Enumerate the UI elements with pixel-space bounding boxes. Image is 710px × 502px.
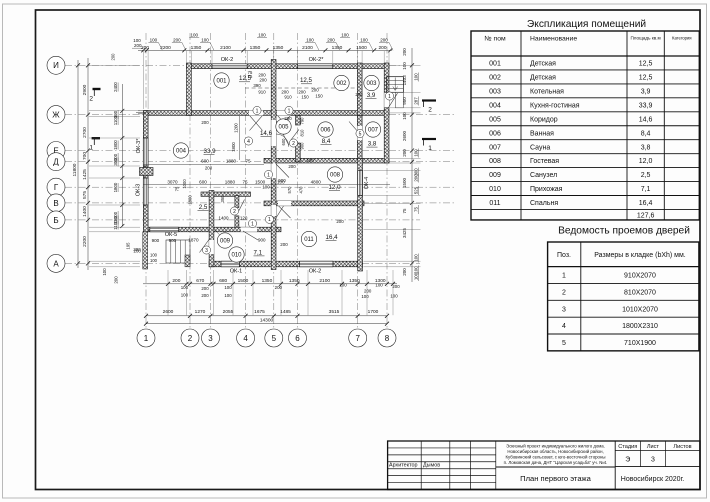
svg-text:3: 3: [208, 334, 213, 343]
svg-text:3: 3: [562, 306, 566, 313]
svg-text:1800: 1800: [113, 182, 118, 192]
svg-text:010: 010: [231, 253, 242, 259]
svg-text:200: 200: [111, 53, 116, 61]
svg-text:150: 150: [315, 93, 323, 98]
svg-text:100: 100: [414, 149, 419, 157]
svg-text:200: 200: [364, 288, 372, 293]
svg-text:14,6: 14,6: [260, 130, 273, 137]
svg-text:1403: 1403: [402, 75, 407, 86]
svg-text:75: 75: [414, 207, 419, 212]
svg-text:100: 100: [181, 285, 189, 290]
svg-text:7,1: 7,1: [254, 249, 263, 256]
svg-text:3515: 3515: [329, 309, 340, 315]
svg-text:100: 100: [402, 62, 407, 70]
svg-text:1: 1: [388, 94, 391, 100]
svg-text:Санузел: Санузел: [530, 172, 557, 179]
svg-text:14,6: 14,6: [639, 116, 653, 123]
svg-text:100: 100: [306, 158, 314, 163]
svg-text:011: 011: [304, 237, 314, 243]
svg-text:Категория: Категория: [672, 35, 692, 40]
svg-text:1500: 1500: [356, 45, 367, 51]
svg-text:Спальня: Спальня: [530, 200, 558, 207]
svg-text:100: 100: [360, 38, 368, 43]
svg-text:470: 470: [299, 186, 304, 194]
svg-text:1350: 1350: [191, 45, 202, 51]
svg-text:3: 3: [651, 457, 655, 464]
svg-text:1: 1: [89, 145, 93, 152]
svg-text:Ванная: Ванная: [530, 130, 554, 137]
svg-text:1350: 1350: [289, 278, 300, 284]
svg-text:2,5: 2,5: [199, 204, 208, 211]
svg-text:1880: 1880: [225, 180, 236, 185]
svg-text:1870: 1870: [188, 237, 199, 242]
svg-text:200: 200: [284, 116, 292, 121]
svg-text:100: 100: [150, 38, 158, 43]
svg-text:525: 525: [414, 186, 419, 194]
svg-text:1675: 1675: [254, 309, 265, 315]
svg-text:3,8: 3,8: [641, 144, 651, 151]
svg-text:700: 700: [82, 152, 88, 160]
svg-text:004: 004: [176, 149, 187, 155]
svg-text:4: 4: [562, 323, 566, 330]
svg-text:1485: 1485: [280, 309, 291, 315]
svg-text:1350: 1350: [273, 45, 284, 51]
svg-text:2055: 2055: [223, 309, 234, 315]
svg-text:100: 100: [150, 252, 158, 257]
svg-text:100: 100: [375, 283, 383, 288]
svg-text:И: И: [53, 61, 59, 70]
svg-text:Ж: Ж: [52, 110, 60, 119]
svg-text:2: 2: [233, 209, 236, 215]
svg-text:12,5: 12,5: [300, 77, 313, 84]
svg-text:14300: 14300: [260, 317, 274, 323]
svg-text:600: 600: [281, 138, 286, 146]
svg-text:12,0: 12,0: [639, 158, 653, 165]
svg-text:ОК-2: ОК-2: [309, 268, 322, 274]
svg-text:8,4: 8,4: [641, 130, 651, 137]
svg-text:100: 100: [341, 33, 349, 38]
svg-text:8: 8: [385, 334, 390, 343]
svg-text:1500: 1500: [238, 278, 249, 284]
svg-text:1350: 1350: [250, 45, 261, 51]
svg-text:1800: 1800: [188, 195, 193, 205]
svg-text:200: 200: [201, 293, 209, 298]
svg-text:200: 200: [380, 38, 388, 43]
svg-text:100: 100: [414, 73, 419, 81]
svg-text:Кухня-гостиная: Кухня-гостиная: [530, 102, 580, 109]
svg-text:75: 75: [242, 180, 248, 185]
svg-text:Г: Г: [54, 183, 59, 192]
svg-text:200: 200: [402, 149, 407, 157]
svg-text:Сауна: Сауна: [530, 144, 550, 151]
svg-text:А: А: [53, 259, 59, 268]
svg-text:33,9: 33,9: [639, 102, 653, 109]
svg-text:790: 790: [300, 117, 305, 125]
svg-text:1: 1: [428, 145, 432, 152]
svg-text:75: 75: [245, 159, 251, 164]
svg-text:4: 4: [247, 139, 250, 145]
svg-text:200: 200: [172, 278, 180, 284]
svg-text:1400: 1400: [82, 206, 88, 217]
svg-text:План первого этажа: План первого этажа: [520, 474, 591, 483]
svg-text:2900: 2900: [82, 84, 88, 95]
svg-text:680: 680: [219, 278, 227, 284]
svg-text:1400: 1400: [218, 216, 229, 221]
svg-text:1800: 1800: [231, 142, 236, 152]
svg-text:Дымов: Дымов: [423, 462, 440, 468]
svg-text:Архитектор: Архитектор: [389, 462, 417, 468]
svg-text:910Х2070: 910Х2070: [624, 273, 656, 280]
svg-text:200: 200: [280, 242, 288, 247]
svg-text:ОК-2*: ОК-2*: [309, 57, 325, 63]
svg-text:002: 002: [336, 81, 347, 87]
svg-text:001: 001: [489, 61, 501, 68]
svg-text:950: 950: [402, 97, 407, 105]
svg-text:200: 200: [336, 219, 344, 224]
svg-text:Эскизный проект индивидуальног: Эскизный проект индивидуального жилого д…: [506, 443, 605, 448]
svg-text:200: 200: [114, 276, 119, 284]
svg-text:100: 100: [224, 285, 232, 290]
svg-text:1500: 1500: [402, 177, 407, 188]
svg-text:1800Х2310: 1800Х2310: [622, 323, 658, 330]
svg-text:009: 009: [220, 239, 231, 245]
svg-text:100: 100: [150, 258, 158, 263]
svg-text:003: 003: [489, 88, 501, 95]
svg-text:200: 200: [201, 286, 209, 291]
svg-text:1800: 1800: [113, 140, 118, 150]
svg-text:005: 005: [278, 125, 289, 131]
svg-text:п. Ломовская дача, ДНТ "Царска: п. Ломовская дача, ДНТ "Царская усадьба"…: [504, 460, 608, 465]
svg-text:2100: 2100: [319, 278, 330, 284]
svg-text:2400: 2400: [113, 82, 118, 92]
svg-text:200: 200: [402, 268, 407, 276]
svg-text:Лист: Лист: [647, 444, 660, 450]
svg-text:1: 1: [267, 172, 270, 178]
svg-text:100: 100: [201, 38, 209, 43]
svg-text:008: 008: [489, 158, 501, 165]
svg-text:1: 1: [251, 221, 254, 227]
svg-text:3070: 3070: [167, 180, 178, 185]
svg-text:1350: 1350: [349, 278, 360, 284]
svg-text:Э: Э: [625, 457, 630, 464]
svg-text:009: 009: [489, 172, 501, 179]
svg-text:900: 900: [300, 142, 305, 150]
svg-text:Коридор: Коридор: [530, 116, 558, 123]
svg-text:200: 200: [134, 43, 142, 48]
svg-text:3,9: 3,9: [367, 92, 376, 99]
svg-text:300: 300: [113, 158, 118, 166]
svg-text:100: 100: [102, 268, 107, 276]
svg-text:200: 200: [414, 174, 419, 182]
svg-text:575: 575: [82, 191, 88, 199]
svg-text:1000: 1000: [182, 179, 187, 189]
svg-text:127,6: 127,6: [637, 212, 655, 219]
svg-text:100: 100: [306, 38, 314, 43]
svg-text:Прихожая: Прихожая: [530, 186, 563, 193]
svg-text:810: 810: [300, 129, 305, 137]
svg-text:ОК-1: ОК-1: [230, 268, 243, 274]
svg-text:2600: 2600: [402, 130, 407, 141]
svg-text:670: 670: [196, 278, 204, 284]
svg-text:12,0: 12,0: [328, 184, 341, 191]
svg-text:810Х2070: 810Х2070: [624, 289, 656, 296]
svg-text:Поз.: Поз.: [557, 252, 571, 259]
svg-text:16,4: 16,4: [326, 234, 339, 241]
svg-text:120: 120: [240, 216, 248, 221]
svg-text:100: 100: [262, 185, 270, 190]
svg-text:1100: 1100: [113, 115, 118, 125]
svg-text:ОК-3*: ОК-3*: [136, 138, 142, 154]
svg-text:200: 200: [259, 78, 267, 83]
svg-text:3,9: 3,9: [641, 88, 651, 95]
svg-text:Б: Б: [53, 216, 58, 225]
svg-text:3,8: 3,8: [368, 141, 377, 148]
svg-text:001: 001: [216, 79, 227, 85]
svg-text:200: 200: [173, 38, 181, 43]
svg-text:100: 100: [190, 33, 198, 38]
svg-text:Детская: Детская: [530, 61, 556, 68]
svg-text:100: 100: [361, 294, 369, 299]
svg-text:1: 1: [256, 108, 259, 114]
svg-text:007: 007: [489, 144, 501, 151]
svg-text:6: 6: [295, 334, 300, 343]
svg-text:33,9: 33,9: [204, 148, 217, 155]
svg-text:Новосибирск 2020г.: Новосибирск 2020г.: [621, 475, 684, 483]
svg-text:1350: 1350: [262, 278, 273, 284]
svg-text:200: 200: [134, 249, 142, 254]
svg-text:7,1: 7,1: [641, 186, 651, 193]
svg-text:Д: Д: [53, 158, 59, 167]
svg-text:600: 600: [201, 159, 209, 164]
svg-text:7: 7: [355, 334, 360, 343]
svg-text:100: 100: [339, 283, 347, 288]
svg-text:3: 3: [205, 248, 208, 254]
svg-text:1350: 1350: [332, 45, 343, 51]
svg-text:150: 150: [301, 94, 309, 99]
svg-text:910: 910: [284, 94, 292, 99]
svg-text:16,4: 16,4: [639, 200, 653, 207]
svg-text:Наименование: Наименование: [530, 36, 577, 43]
svg-text:75: 75: [175, 186, 180, 191]
svg-text:1: 1: [288, 108, 291, 114]
svg-text:100: 100: [224, 293, 232, 298]
svg-text:1010Х2070: 1010Х2070: [622, 306, 658, 313]
svg-text:900: 900: [152, 238, 160, 243]
svg-text:Кубовинский сельсовет, с юго-в: Кубовинский сельсовет, с юго-восточной с…: [506, 454, 606, 459]
svg-text:Гостевая: Гостевая: [530, 158, 559, 165]
svg-text:8,4: 8,4: [322, 138, 331, 145]
svg-text:200: 200: [392, 284, 400, 289]
svg-text:ОК-2: ОК-2: [221, 57, 234, 63]
svg-text:1100: 1100: [113, 220, 118, 230]
svg-text:1700: 1700: [368, 309, 379, 315]
svg-text:200: 200: [275, 285, 283, 290]
svg-text:ОК-4: ОК-4: [364, 177, 370, 190]
svg-text:1880: 1880: [226, 159, 237, 164]
svg-text:570: 570: [287, 186, 292, 194]
svg-text:75: 75: [248, 74, 253, 79]
svg-text:Размеры в кладке (bХh) мм.: Размеры в кладке (bХh) мм.: [594, 252, 686, 259]
svg-text:002: 002: [489, 75, 501, 82]
svg-text:№ пом: № пом: [484, 36, 506, 43]
svg-text:2,5: 2,5: [641, 172, 651, 179]
svg-text:2100: 2100: [302, 45, 313, 51]
svg-text:Котельная: Котельная: [530, 88, 564, 95]
svg-text:003: 003: [366, 81, 377, 87]
svg-text:007: 007: [368, 128, 379, 134]
svg-text:006: 006: [489, 130, 501, 137]
svg-text:011: 011: [489, 200, 500, 207]
svg-text:Листов: Листов: [673, 444, 691, 450]
svg-text:100: 100: [414, 272, 419, 280]
svg-text:5: 5: [562, 340, 566, 347]
svg-text:Площадь кв.м: Площадь кв.м: [631, 35, 661, 40]
svg-text:2200: 2200: [160, 45, 171, 51]
svg-text:710Х1900: 710Х1900: [624, 340, 656, 347]
svg-text:Стадия: Стадия: [618, 444, 637, 450]
svg-text:1: 1: [562, 273, 566, 280]
svg-text:910: 910: [258, 89, 266, 94]
svg-text:200: 200: [258, 73, 266, 78]
svg-text:006: 006: [320, 128, 331, 134]
svg-text:2: 2: [292, 141, 295, 147]
svg-text:195: 195: [126, 242, 131, 250]
svg-text:5: 5: [272, 334, 277, 343]
svg-text:200: 200: [355, 92, 363, 97]
svg-text:Экспликация помещений: Экспликация помещений: [527, 19, 646, 30]
svg-text:4800: 4800: [311, 180, 322, 185]
svg-text:004: 004: [489, 102, 501, 109]
svg-text:350: 350: [220, 195, 225, 203]
svg-text:2: 2: [428, 107, 432, 114]
svg-text:200: 200: [205, 166, 213, 171]
svg-text:3425: 3425: [402, 227, 407, 238]
svg-text:287: 287: [414, 97, 419, 105]
svg-text:5: 5: [359, 131, 362, 137]
svg-text:1: 1: [144, 334, 149, 343]
svg-text:900: 900: [258, 238, 266, 243]
svg-text:200: 200: [402, 48, 407, 56]
svg-text:1270: 1270: [195, 309, 206, 315]
svg-text:75: 75: [402, 208, 407, 214]
svg-text:200: 200: [378, 45, 386, 51]
svg-text:200: 200: [327, 38, 335, 43]
svg-text:2100: 2100: [220, 45, 231, 51]
svg-text:Детская: Детская: [530, 75, 556, 82]
svg-text:200: 200: [141, 45, 149, 51]
svg-text:005: 005: [489, 116, 501, 123]
svg-text:100: 100: [258, 33, 266, 38]
svg-text:008: 008: [330, 173, 341, 179]
svg-text:1200: 1200: [234, 123, 239, 133]
svg-text:600: 600: [199, 180, 207, 185]
svg-text:200: 200: [201, 120, 209, 125]
svg-text:390: 390: [253, 83, 261, 88]
svg-text:100: 100: [181, 293, 189, 298]
svg-text:2: 2: [188, 334, 193, 343]
svg-text:2700: 2700: [82, 127, 88, 138]
svg-text:200: 200: [311, 87, 319, 92]
svg-text:Ведомость проемов дверей: Ведомость проемов дверей: [558, 226, 690, 237]
svg-text:900: 900: [169, 238, 177, 243]
svg-text:4: 4: [243, 334, 248, 343]
svg-text:1425: 1425: [82, 169, 88, 180]
svg-text:В: В: [53, 199, 58, 208]
svg-text:Новосибирская область, Новосиб: Новосибирская область, Новосибирский рай…: [507, 449, 603, 454]
svg-text:1: 1: [268, 217, 271, 223]
svg-text:010: 010: [489, 186, 501, 193]
svg-text:12,5: 12,5: [639, 61, 653, 68]
svg-text:100: 100: [414, 254, 419, 262]
svg-text:2: 2: [562, 289, 566, 296]
svg-text:11800: 11800: [72, 163, 78, 176]
svg-text:12,5: 12,5: [639, 75, 653, 82]
svg-text:200: 200: [288, 164, 296, 169]
svg-text:ОК-3: ОК-3: [136, 184, 142, 197]
svg-text:2200: 2200: [82, 236, 88, 247]
svg-text:2: 2: [89, 96, 93, 103]
svg-text:500: 500: [278, 178, 286, 183]
svg-text:100: 100: [390, 293, 398, 298]
